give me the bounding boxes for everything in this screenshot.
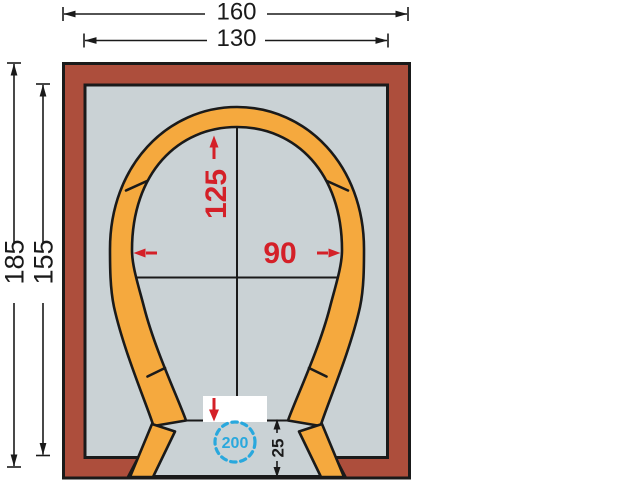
inner-height-arrow-bottom-icon <box>40 443 47 455</box>
outer-width-arrow-right-icon <box>396 11 408 18</box>
inner-width-arrow-right-icon <box>376 37 388 44</box>
ledge-depth-label: 25 <box>269 439 288 458</box>
inner-height-label: 155 <box>29 239 59 284</box>
inner-width-dimension: 130 <box>84 25 388 52</box>
oven-plan-page: 200 25 160 130 185 <box>0 0 640 489</box>
dome-height-label: 125 <box>200 169 233 219</box>
inner-height-arrow-top-icon <box>40 85 47 97</box>
oven-plan-diagram: 200 25 160 130 185 <box>0 0 640 489</box>
outer-height-arrow-top-icon <box>11 64 18 76</box>
outer-height-label: 185 <box>0 239 30 284</box>
outer-height-arrow-bottom-icon <box>11 455 18 467</box>
outer-height-dimension: 185 <box>0 63 30 467</box>
inner-height-dimension: 155 <box>29 84 59 456</box>
outer-width-arrow-left-icon <box>64 11 76 18</box>
inner-width-arrow-left-icon <box>85 37 97 44</box>
outer-width-label: 160 <box>216 0 256 26</box>
dome-width-label: 90 <box>263 237 296 270</box>
outer-width-dimension: 160 <box>63 0 408 26</box>
hearth-circle-label: 200 <box>222 435 249 452</box>
inner-width-label: 130 <box>216 25 256 52</box>
